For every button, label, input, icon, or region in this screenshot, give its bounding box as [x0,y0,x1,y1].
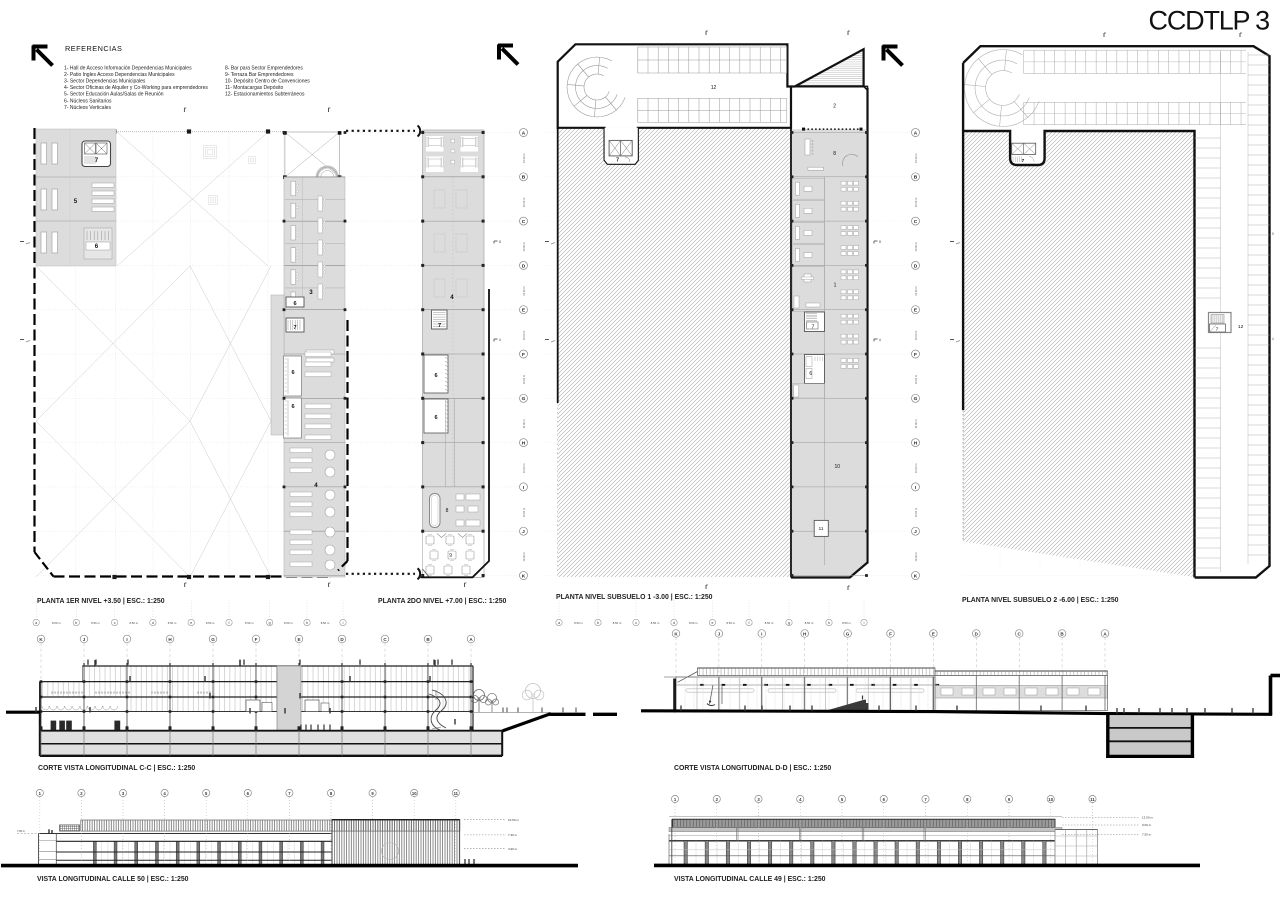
svg-text:3: 3 [309,289,313,296]
svg-text:8.50 m: 8.50 m [726,621,735,625]
svg-text:3- Sector Dependencias Municip: 3- Sector Dependencias Municipales [64,79,146,85]
svg-text:F: F [255,637,258,642]
svg-text:6: 6 [293,301,296,307]
svg-text:7: 7 [1022,158,1025,164]
svg-text:4: 4 [314,482,318,489]
svg-text:2: 2 [833,104,836,110]
svg-text:8.50 m: 8.50 m [689,621,698,625]
svg-text:7: 7 [293,325,296,331]
svg-text:10.00 m: 10.00 m [522,198,526,207]
svg-text:H: H [522,441,526,447]
svg-text:a: a [558,621,560,625]
svg-text:e: e [190,621,192,625]
svg-text:d: d [152,621,154,625]
svg-text:f: f [229,621,230,625]
svg-text:6: 6 [434,373,437,379]
svg-text:6: 6 [809,371,812,377]
svg-text:10.00 m: 10.00 m [522,419,526,428]
svg-text:10.00 m: 10.00 m [522,331,526,340]
svg-text:I: I [126,637,127,642]
svg-text:7.30 m: 7.30 m [508,833,518,837]
svg-text:10.00 m: 10.00 m [522,242,526,251]
svg-text:5- Sector Educación Aulas/Sala: 5- Sector Educación Aulas/Salas de Reuni… [64,92,164,98]
svg-text:10.00 m: 10.00 m [522,153,526,162]
svg-text:10.00 m: 10.00 m [522,286,526,295]
svg-text:CORTE VISTA LONGITUDINAL C-C |: CORTE VISTA LONGITUDINAL C-C | ESC.: 1:2… [38,765,195,772]
svg-text:PLANTA NIVEL SUBSUELO 2 -6.00: PLANTA NIVEL SUBSUELO 2 -6.00 | ESC.: 1:… [962,597,1119,604]
svg-text:10.00 m: 10.00 m [522,552,526,561]
svg-text:8.50 m: 8.50 m [129,621,138,625]
svg-text:12: 12 [711,85,717,91]
svg-text:F: F [522,352,525,358]
svg-text:10.00 m: 10.00 m [914,419,918,428]
svg-text:7: 7 [812,325,815,331]
svg-text:10.00 m: 10.00 m [914,552,918,561]
svg-text:8.50 m: 8.50 m [52,621,61,625]
svg-text:B: B [879,240,881,244]
svg-text:10.00 m: 10.00 m [914,153,918,162]
svg-text:6: 6 [291,404,294,410]
svg-text:J: J [718,631,721,636]
svg-text:8.50 m: 8.50 m [842,621,851,625]
svg-text:10.00 m: 10.00 m [914,464,918,473]
svg-text:10.00 m: 10.00 m [914,508,918,517]
svg-text:B: B [522,175,526,181]
svg-text:12: 12 [1238,324,1244,330]
svg-text:8- Bar para Sector Emprendedor: 8- Bar para Sector Emprendedores [225,65,303,71]
svg-text:REFERENCIAS: REFERENCIAS [65,44,122,53]
svg-text:7- Núcleos Verticales: 7- Núcleos Verticales [64,105,111,111]
svg-text:b: b [597,621,599,625]
svg-text:PLANTA 1ER NIVEL +3.50 | ESC.:: PLANTA 1ER NIVEL +3.50 | ESC.: 1:250 [37,598,165,605]
svg-text:1- Hall de Acceso Información: 1- Hall de Acceso Información Dependenci… [64,65,192,71]
svg-text:8.50 m: 8.50 m [206,621,215,625]
svg-text:7.50 m: 7.50 m [1142,833,1152,837]
svg-text:11: 11 [454,791,459,796]
svg-text:B: B [1272,232,1274,236]
svg-text:10: 10 [1048,797,1053,802]
svg-text:CORTE VISTA LONGITUDINAL D-D |: CORTE VISTA LONGITUDINAL D-D | ESC.: 1:2… [674,765,831,772]
svg-text:8.50 m: 8.50 m [765,621,774,625]
svg-text:7: 7 [438,323,441,329]
svg-text:7: 7 [616,158,619,164]
svg-text:E: E [297,637,300,642]
svg-text:K: K [522,573,526,579]
svg-text:10.00 m: 10.00 m [914,375,918,384]
svg-text:e: e [712,621,714,625]
svg-text:h: h [306,621,308,625]
svg-text:11- Montacargas Depósito: 11- Montacargas Depósito [225,85,283,91]
svg-text:b: b [75,621,77,625]
svg-text:H: H [914,441,918,447]
svg-text:VISTA LONGITUDINAL CALLE 50 |: VISTA LONGITUDINAL CALLE 50 | ESC.: 1:25… [37,876,189,883]
svg-text:10.00 m: 10.00 m [914,286,918,295]
svg-text:B: B [499,240,501,244]
svg-text:g: g [269,621,271,625]
svg-text:8.50 m: 8.50 m [613,621,622,625]
svg-text:A: A [914,130,918,136]
svg-text:a: a [35,621,37,625]
svg-text:10: 10 [412,791,417,796]
svg-text:c: c [114,621,116,625]
svg-text:PLANTA 2DO NIVEL +7.00 | ESC.:: PLANTA 2DO NIVEL +7.00 | ESC.: 1:250 [378,598,507,605]
svg-text:10.50 m: 10.50 m [508,818,519,822]
svg-text:8: 8 [446,508,449,514]
svg-text:9.00 m: 9.00 m [1142,823,1152,827]
svg-text:6- Núcleos Sanitarios: 6- Núcleos Sanitarios [64,98,112,104]
svg-text:J: J [914,529,917,535]
svg-text:F: F [889,631,892,636]
svg-text:10.00 m: 10.00 m [914,198,918,207]
svg-text:8.50 m: 8.50 m [321,621,330,625]
svg-text:10.00 m: 10.00 m [522,508,526,517]
svg-text:2- Patio Ingles Acceso Depende: 2- Patio Ingles Acceso Dependencias Muni… [64,72,175,78]
svg-text:11: 11 [819,526,824,531]
svg-text:8.50 m: 8.50 m [168,621,177,625]
svg-text:3.90 m: 3.90 m [508,847,518,851]
svg-text:B: B [914,175,918,181]
svg-text:8: 8 [833,151,836,157]
svg-text:8.50 m: 8.50 m [805,621,814,625]
svg-text:7: 7 [95,157,99,164]
svg-text:J: J [522,529,525,535]
svg-text:12- Estacionamientos Subterrán: 12- Estacionamientos Subterráneos [225,92,305,98]
svg-text:10: 10 [835,464,841,470]
svg-text:8.50 m: 8.50 m [651,621,660,625]
svg-text:f: f [749,621,750,625]
svg-text:C: C [522,219,526,225]
svg-text:4: 4 [450,294,454,301]
svg-text:5: 5 [74,198,78,205]
svg-text:7.00 m: 7.00 m [17,829,25,833]
svg-text:10.00 m: 10.00 m [522,464,526,473]
svg-text:8.50 m: 8.50 m [245,621,254,625]
svg-text:E: E [932,631,935,636]
svg-text:PLANTA NIVEL SUBSUELO 1 -3.00: PLANTA NIVEL SUBSUELO 1 -3.00 | ESC.: 1:… [556,594,713,601]
svg-text:G: G [522,396,526,402]
svg-text:c: c [635,621,637,625]
svg-text:8.50 m: 8.50 m [91,621,100,625]
svg-text:10.00 m: 10.00 m [914,242,918,251]
svg-text:10.00 m: 10.00 m [522,375,526,384]
svg-text:A: A [522,130,526,136]
svg-text:11: 11 [1090,797,1095,802]
svg-text:G: G [914,396,918,402]
svg-text:h: h [828,621,830,625]
svg-text:8.50 m: 8.50 m [574,621,583,625]
svg-text:9: 9 [449,553,452,559]
svg-text:D: D [914,263,918,269]
svg-text:VISTA LONGITUDINAL CALLE 49 |: VISTA LONGITUDINAL CALLE 49 | ESC.: 1:25… [674,876,826,883]
svg-text:13.50 m: 13.50 m [1142,816,1153,820]
svg-text:6: 6 [291,370,294,376]
svg-text:1: 1 [834,283,837,289]
svg-text:9- Terraza Bar Emprendedores: 9- Terraza Bar Emprendedores [225,72,294,78]
svg-text:I: I [761,631,762,636]
svg-text:10.00 m: 10.00 m [914,331,918,340]
svg-text:g: g [788,621,790,625]
svg-text:6: 6 [434,415,437,421]
svg-text:F: F [914,352,917,358]
svg-text:8.50 m: 8.50 m [284,621,293,625]
svg-text:G: G [211,637,215,642]
svg-text:G: G [846,631,850,636]
svg-text:C: C [914,219,918,225]
svg-text:K: K [914,573,918,579]
svg-text:CCDTLP 3: CCDTLP 3 [1149,6,1270,36]
svg-text:d: d [673,621,675,625]
svg-text:10- Depósito Centro de Convenc: 10- Depósito Centro de Convenciones [225,79,310,85]
svg-text:D: D [522,263,526,269]
svg-text:J: J [83,637,86,642]
svg-text:6: 6 [95,243,99,250]
svg-text:4- Sector Oficinas de Alquiler: 4- Sector Oficinas de Alquiler y Co-Work… [64,85,208,91]
svg-text:7: 7 [1216,327,1219,333]
